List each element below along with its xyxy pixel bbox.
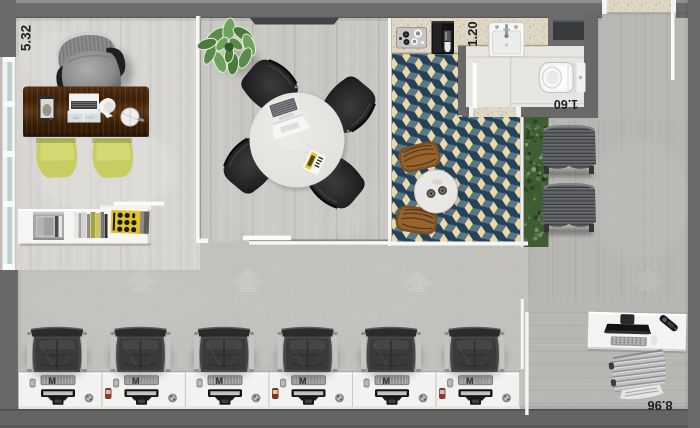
svg-text:1.60: 1.60 [554, 97, 578, 111]
svg-text:8.96: 8.96 [647, 398, 672, 413]
svg-text:5.32: 5.32 [19, 25, 34, 51]
svg-text:1.20: 1.20 [465, 21, 480, 46]
